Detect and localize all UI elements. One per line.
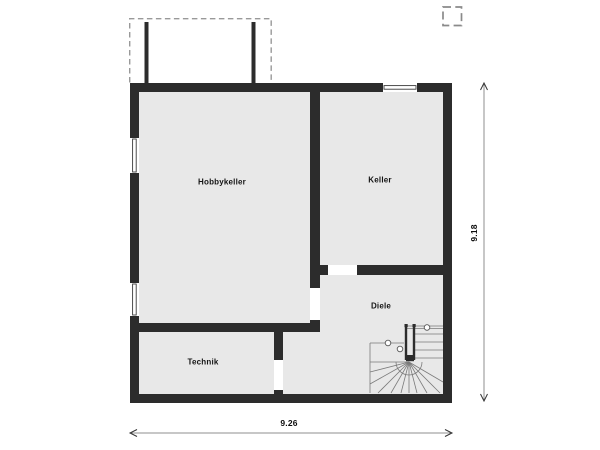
window-left-upper: [130, 138, 139, 173]
floor-plan-drawing: [0, 0, 600, 450]
terrace-outline: [130, 19, 272, 83]
room-label-hobbykeller: Hobbykeller: [198, 178, 246, 187]
dimension-width-label: 9.26: [280, 418, 297, 428]
room-label-keller: Keller: [368, 176, 391, 185]
room-label-diele: Diele: [371, 302, 391, 311]
window-top-keller: [383, 83, 417, 92]
dimension-line-height: [481, 83, 488, 401]
chimney-marker-icon: [443, 7, 462, 26]
room-label-technik: Technik: [187, 358, 218, 367]
terrace-posts: [145, 22, 256, 83]
window-left-lower: [130, 283, 139, 316]
dimension-line-width: [130, 430, 452, 437]
dimension-height-label: 9.18: [469, 224, 479, 241]
floor-plan-canvas: Hobbykeller Keller Diele Technik 9.26 9.…: [0, 0, 600, 450]
